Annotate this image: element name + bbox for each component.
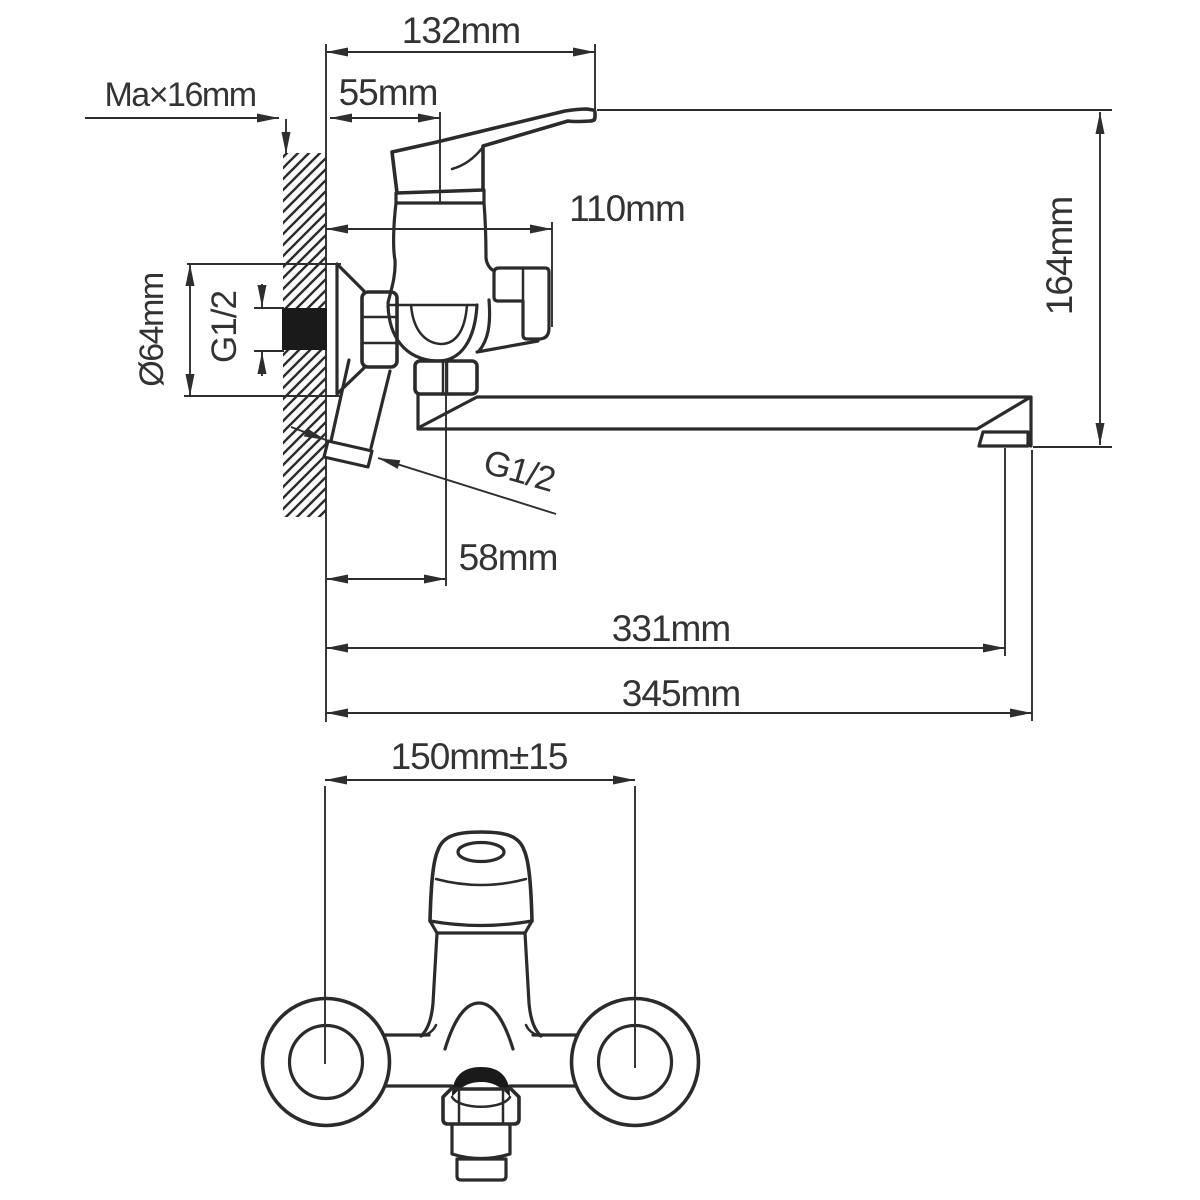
dim-label-reach-total: 345mm bbox=[622, 673, 740, 714]
dim-label-handle-offset: 55mm bbox=[339, 72, 438, 113]
spout bbox=[418, 394, 1031, 446]
dim-label-body-depth: 110mm bbox=[569, 188, 685, 229]
handle-lever bbox=[392, 109, 595, 193]
diverter-knob bbox=[494, 268, 549, 339]
wall-section bbox=[282, 44, 327, 722]
dim-label-height: 164mm bbox=[1039, 197, 1080, 315]
body-right-edge bbox=[484, 203, 494, 271]
outlet-tail bbox=[457, 1159, 506, 1180]
side-view: 132mm 55mm Ma×16mm 110mm Ø6 bbox=[85, 10, 1112, 722]
body-column-curls bbox=[421, 1025, 541, 1036]
left-flange-inner bbox=[290, 1026, 363, 1099]
spout-outline bbox=[418, 394, 1031, 446]
dim-345mm: 345mm bbox=[326, 450, 1032, 721]
dim-label-mounting-centers: 150mm±15 bbox=[391, 736, 568, 777]
faucet-front bbox=[421, 832, 541, 1180]
dim-label-outlet-thread: G1/2 bbox=[479, 442, 559, 499]
dim-331mm: 331mm bbox=[326, 448, 1005, 656]
outlet-black-band bbox=[452, 1067, 510, 1097]
body-column-front bbox=[421, 933, 541, 1036]
left-flange-outer bbox=[263, 999, 390, 1126]
front-view: 150mm±15 bbox=[263, 736, 699, 1180]
shower-outlet-thread bbox=[324, 441, 372, 467]
drawing-page: 132mm 55mm Ma×16mm 110mm Ø6 bbox=[0, 0, 1200, 1200]
dimensions-side: 132mm 55mm Ma×16mm 110mm Ø6 bbox=[85, 10, 1112, 721]
handle-knob-band bbox=[436, 879, 526, 885]
dim-label-inlet-thread: G1/2 bbox=[205, 291, 244, 363]
cartridge-ring-front bbox=[430, 921, 532, 933]
handle-lever-end bbox=[458, 843, 504, 862]
dim-label-flange-diameter: Ø64mm bbox=[133, 273, 171, 387]
dim-label-reach-aerator: 331mm bbox=[612, 608, 730, 649]
dim-max-wall: Ma×16mm bbox=[85, 76, 286, 154]
body-lower-right bbox=[479, 300, 490, 351]
faucet-side bbox=[324, 109, 1031, 467]
body-left-edge bbox=[388, 203, 396, 303]
dim-label-top-width: 132mm bbox=[402, 10, 520, 51]
dim-label-wall-max: Ma×16mm bbox=[104, 76, 255, 114]
dim-label-spout-pivot: 58mm bbox=[459, 537, 558, 578]
inlet-pipe-section bbox=[282, 308, 327, 350]
aerator bbox=[979, 432, 1028, 446]
outlet-cylinder bbox=[452, 1124, 510, 1159]
dim-g12-inlet: G1/2 bbox=[205, 284, 284, 376]
body-underside-inner bbox=[411, 305, 467, 344]
outlet-opening bbox=[452, 1097, 510, 1107]
body-underside bbox=[388, 305, 477, 361]
outlet-mound bbox=[445, 1003, 513, 1049]
faucet-technical-drawing: 132mm 55mm Ma×16mm 110mm Ø6 bbox=[0, 0, 1200, 1200]
body-bottom-slant bbox=[477, 341, 538, 352]
wall-flange bbox=[337, 264, 364, 394]
handle-knob-front bbox=[430, 832, 532, 921]
